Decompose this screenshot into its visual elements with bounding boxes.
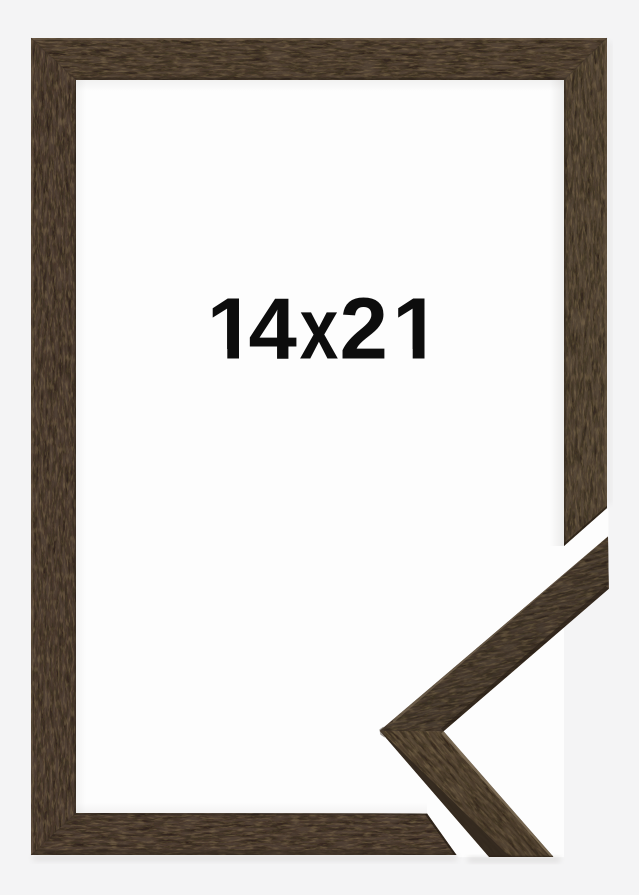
svg-text:x: x [300, 280, 339, 377]
svg-text:2: 2 [340, 281, 388, 378]
svg-text:1: 1 [392, 281, 440, 378]
svg-text:4: 4 [249, 281, 297, 378]
